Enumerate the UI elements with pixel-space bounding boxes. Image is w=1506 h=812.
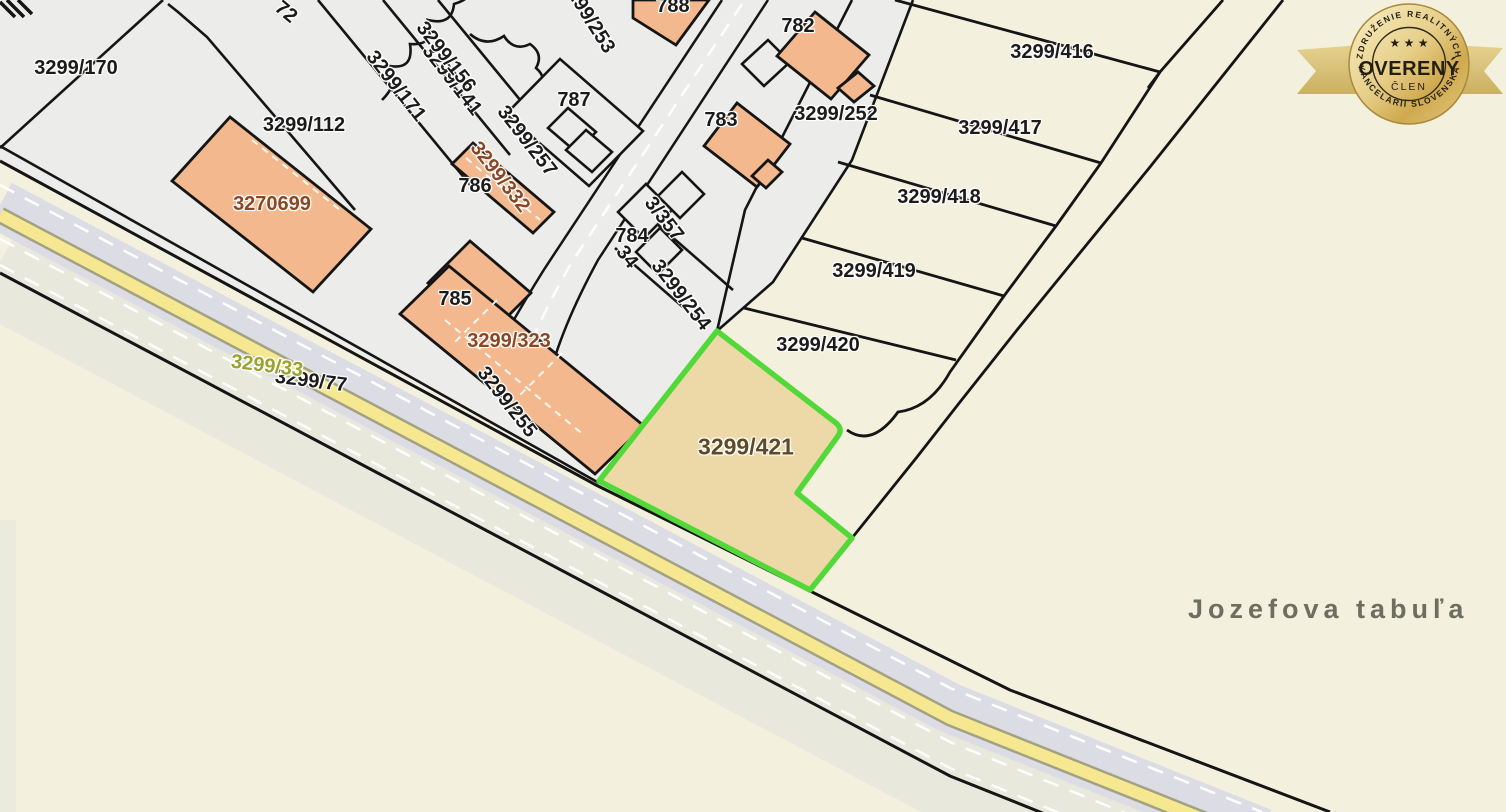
map-geometry-canvas <box>0 0 1506 812</box>
badge-stars: ★ ★ ★ <box>1390 36 1429 50</box>
badge-title: OVERENÝ <box>1358 56 1459 80</box>
region-name-label: Jozefova tabuľa <box>1188 594 1468 625</box>
badge-member-text: ČLEN <box>1391 80 1427 93</box>
certification-badge: ZDRUŽENIE REALITNÝCH ★ ★ ★ OVERENÝ ČLEN … <box>1283 0 1506 132</box>
cadastral-map: 3299/1703299/1123270699723299/1713299/14… <box>0 0 1506 812</box>
map-edge-shade <box>0 520 16 812</box>
